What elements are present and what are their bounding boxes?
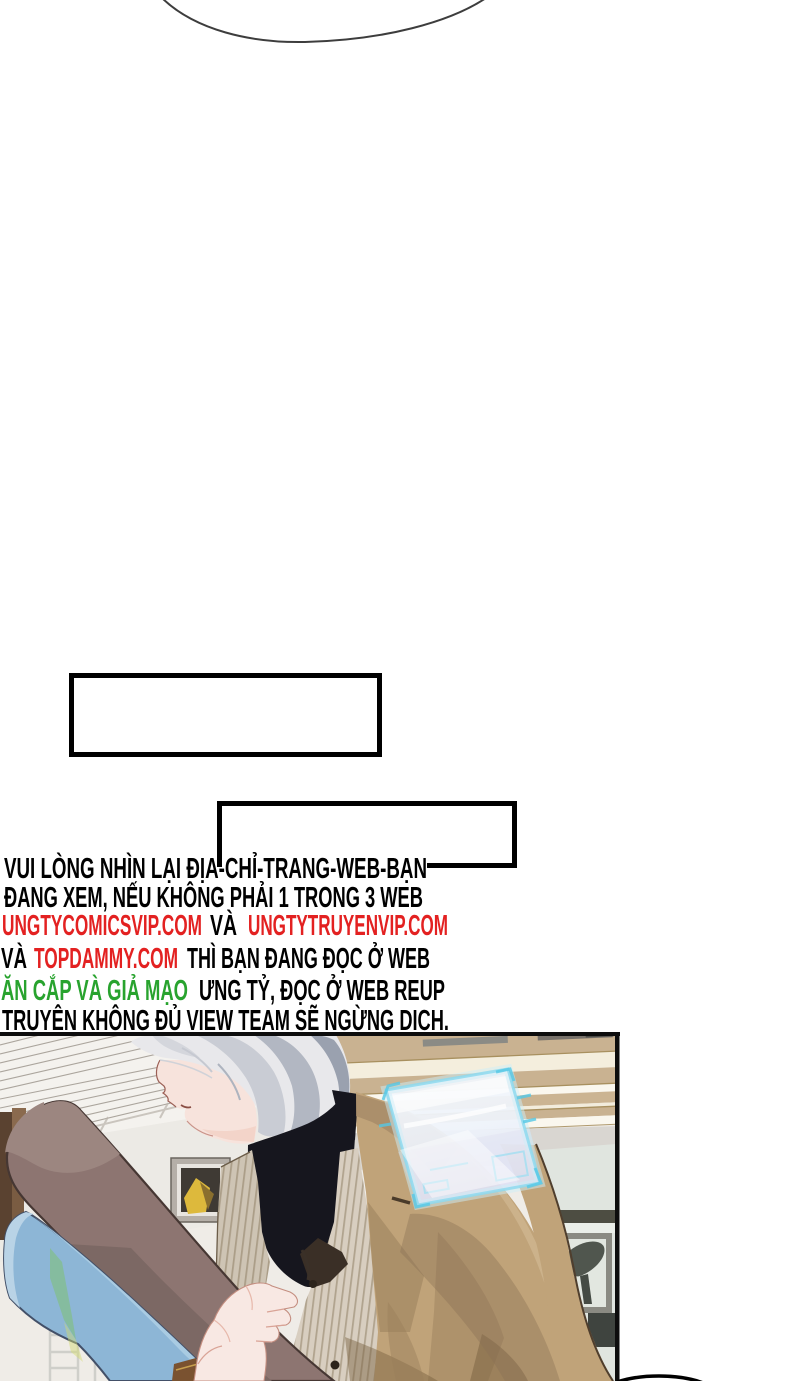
svg-text:ĐANG XEM, NẾU KHÔNG PHẢI 1 TRO: ĐANG XEM, NẾU KHÔNG PHẢI 1 TRONG 3 WEB — [4, 880, 423, 914]
svg-text:ƯNG TỶ, ĐỌC Ở WEB REUP: ƯNG TỶ, ĐỌC Ở WEB REUP — [199, 973, 445, 1007]
svg-text:VÀ: VÀ — [210, 909, 237, 942]
svg-text:VÀ: VÀ — [1, 942, 27, 975]
svg-text:UNGTYTRUYENVIP.COM: UNGTYTRUYENVIP.COM — [248, 910, 448, 941]
svg-text:VUI LÒNG NHÌN LẠI ĐỊA-CHỈ-TRAN: VUI LÒNG NHÌN LẠI ĐỊA-CHỈ-TRANG-WEB-BẠN — [4, 851, 427, 885]
svg-text:TOPDAMMY.COM: TOPDAMMY.COM — [34, 943, 178, 974]
svg-text:UNGTYCOMICSVIP.COM: UNGTYCOMICSVIP.COM — [2, 910, 202, 941]
svg-text:ĂN CẮP VÀ GIẢ MẠO: ĂN CẮP VÀ GIẢ MẠO — [1, 973, 188, 1007]
svg-text:THÌ BẠN ĐANG ĐỌC Ở WEB: THÌ BẠN ĐANG ĐỌC Ở WEB — [187, 941, 430, 975]
